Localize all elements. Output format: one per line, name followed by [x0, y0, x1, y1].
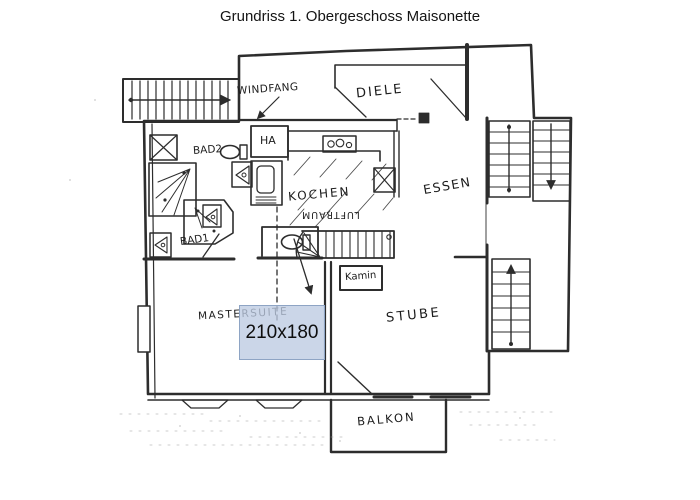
balkon-outline [331, 400, 446, 452]
dimension-overlay[interactable]: 210x180 [239, 305, 325, 360]
windfang-arrow-icon [258, 97, 279, 118]
stairwell-upper-flights-icon [486, 118, 570, 351]
entry-threshold-icon [419, 113, 429, 123]
toilet-icon [221, 145, 248, 159]
shower-icon [149, 163, 196, 216]
floorplan-drawing [0, 0, 700, 500]
sink-icon [232, 162, 252, 187]
room-label-ha: HA [260, 134, 276, 147]
room-label-bad2: BAD2 [193, 143, 223, 157]
sink-icon [203, 205, 221, 227]
sink-icon [251, 161, 282, 205]
shaft-x-icon [374, 168, 395, 192]
mastersuite-stube-wall [325, 262, 331, 394]
floorplan-page: Grundriss 1. Obergeschoss Maisonette [0, 0, 700, 500]
stove-icon [323, 136, 356, 152]
exterior-staircase-icon [123, 79, 239, 122]
room-label-kamin: Kamin [345, 270, 377, 283]
interior-staircase-icon [294, 231, 394, 293]
shaft-x-icon [150, 135, 177, 160]
dimension-label: 210x180 [246, 322, 319, 344]
room-label-luftraum: LUFTRAUM [301, 209, 360, 220]
stairwell-lower-flight-icon [492, 259, 530, 349]
